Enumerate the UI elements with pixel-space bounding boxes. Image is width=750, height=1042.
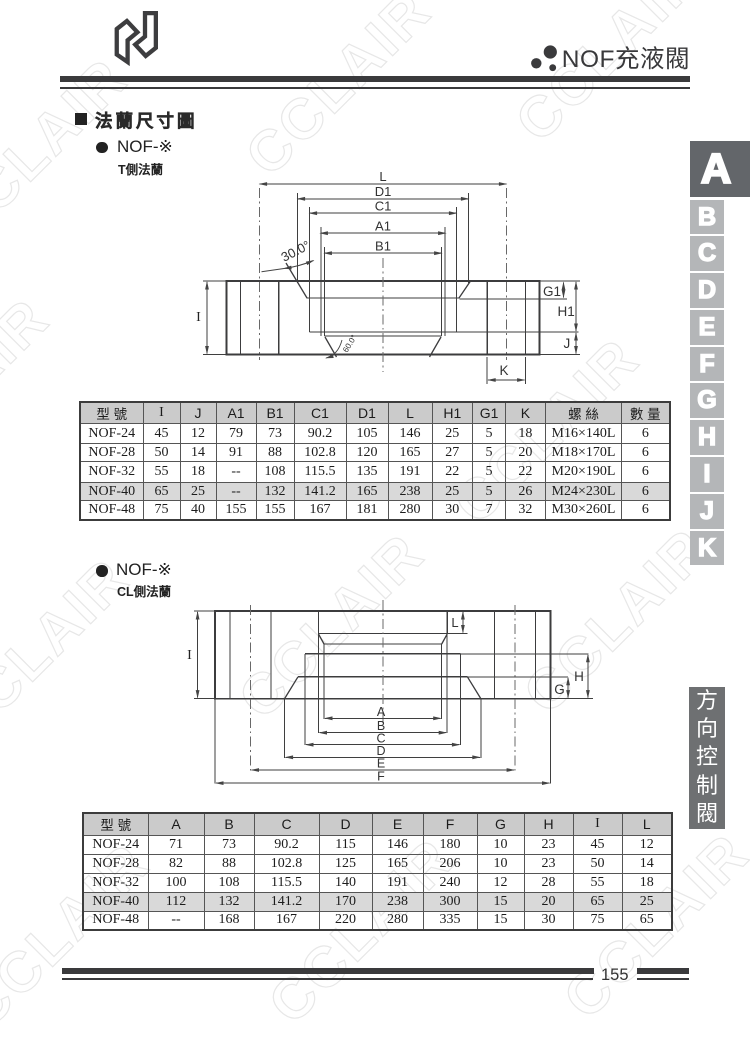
svg-text:L: L bbox=[379, 169, 386, 184]
svg-text:K: K bbox=[499, 363, 508, 378]
svg-text:H1: H1 bbox=[558, 304, 575, 319]
svg-text:J: J bbox=[564, 336, 571, 351]
svg-text:L: L bbox=[451, 615, 458, 630]
svg-text:A1: A1 bbox=[375, 219, 391, 234]
svg-text:H: H bbox=[574, 669, 584, 684]
svg-text:I: I bbox=[196, 310, 201, 325]
svg-text:E: E bbox=[377, 757, 385, 771]
svg-text:30.0°: 30.0° bbox=[279, 237, 313, 264]
svg-text:A: A bbox=[377, 705, 386, 719]
svg-text:G: G bbox=[554, 682, 565, 697]
svg-text:G1: G1 bbox=[543, 284, 561, 299]
svg-text:C1: C1 bbox=[375, 199, 392, 214]
svg-text:D1: D1 bbox=[375, 184, 392, 199]
svg-text:I: I bbox=[187, 648, 192, 663]
svg-text:F: F bbox=[377, 770, 385, 784]
svg-text:B1: B1 bbox=[375, 239, 391, 254]
